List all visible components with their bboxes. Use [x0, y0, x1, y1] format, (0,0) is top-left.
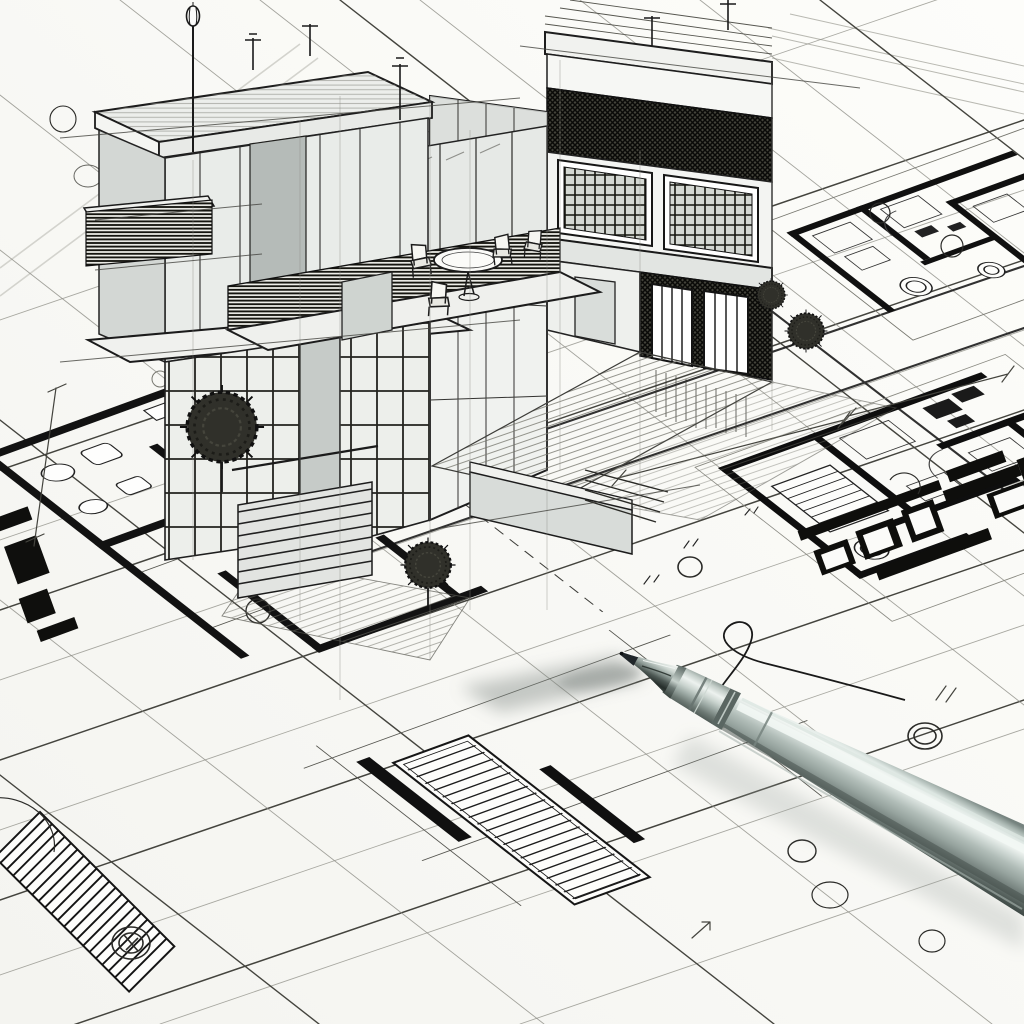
shrub — [400, 537, 455, 592]
sketch-canvas — [0, 0, 1024, 1024]
terrace-side-box — [342, 272, 392, 340]
shrub — [180, 385, 264, 469]
lower-window — [652, 284, 692, 366]
shrub — [754, 278, 788, 312]
lower-window — [704, 291, 748, 374]
architectural-sketch-scene — [0, 0, 1024, 1024]
upper-window — [664, 175, 758, 262]
pen-ball-point — [620, 652, 624, 656]
shrub — [785, 310, 828, 353]
upper-window — [558, 160, 652, 246]
